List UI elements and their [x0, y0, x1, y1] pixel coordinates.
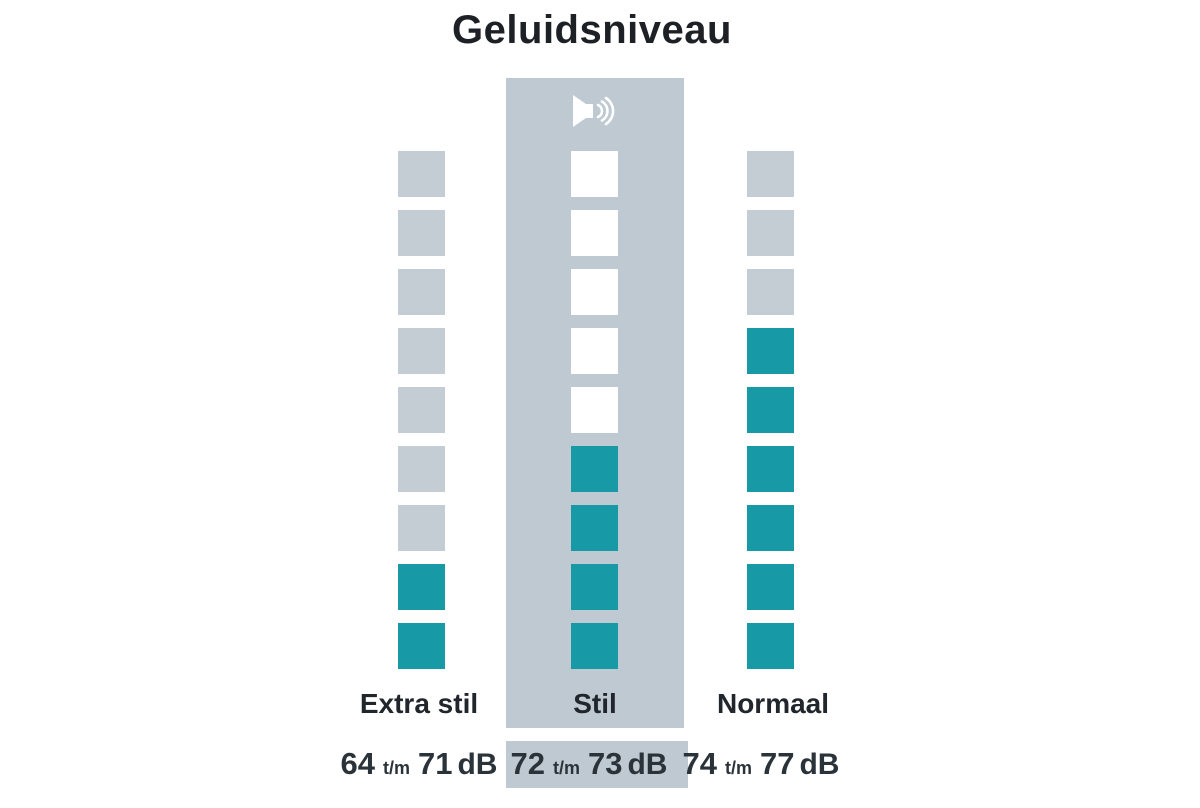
range-from-value: 74 [683, 744, 717, 784]
level-segment [747, 387, 794, 433]
level-segment [747, 446, 794, 492]
range-from-value: 64 [341, 744, 375, 784]
level-segment [571, 505, 618, 551]
range-separator: t/m [383, 748, 410, 788]
sound-level-chart: Geluidsniveau Extra stil Stil Normaal 64… [0, 0, 1200, 808]
column-label-normaal: Normaal [717, 687, 829, 721]
range-separator: t/m [725, 748, 752, 788]
level-segment [398, 387, 445, 433]
level-segment [747, 269, 794, 315]
level-segment [398, 210, 445, 256]
level-segment [571, 210, 618, 256]
level-segment [571, 623, 618, 669]
level-segment [747, 505, 794, 551]
range-extra-stil: 64 t/m 71 dB [341, 744, 498, 788]
range-unit: dB [627, 745, 667, 785]
level-segment [571, 387, 618, 433]
level-segment [571, 151, 618, 197]
range-unit: dB [457, 745, 497, 785]
range-normaal: 74 t/m 77 dB [683, 744, 840, 788]
level-segment [747, 328, 794, 374]
level-segment [571, 269, 618, 315]
range-to-value: 77 [760, 744, 794, 784]
level-column-extra-stil [398, 151, 445, 669]
column-label-extra-stil: Extra stil [360, 687, 478, 721]
level-segment [571, 446, 618, 492]
page-title: Geluidsniveau [452, 8, 732, 53]
level-segment [571, 564, 618, 610]
level-segment [747, 564, 794, 610]
range-separator: t/m [553, 748, 580, 788]
level-segment [398, 505, 445, 551]
range-unit: dB [799, 745, 839, 785]
level-column-normaal [747, 151, 794, 669]
level-segment [747, 210, 794, 256]
speaker-icon [572, 92, 618, 130]
level-column-stil [571, 151, 618, 669]
level-segment [398, 269, 445, 315]
level-segment [747, 151, 794, 197]
level-segment [747, 623, 794, 669]
column-label-stil: Stil [573, 687, 617, 721]
range-from-value: 72 [511, 744, 545, 784]
range-stil: 72 t/m 73 dB [511, 744, 668, 788]
level-segment [398, 328, 445, 374]
level-segment [571, 328, 618, 374]
range-to-value: 71 [418, 744, 452, 784]
range-to-value: 73 [588, 744, 622, 784]
level-segment [398, 446, 445, 492]
level-segment [398, 623, 445, 669]
level-segment [398, 151, 445, 197]
level-segment [398, 564, 445, 610]
